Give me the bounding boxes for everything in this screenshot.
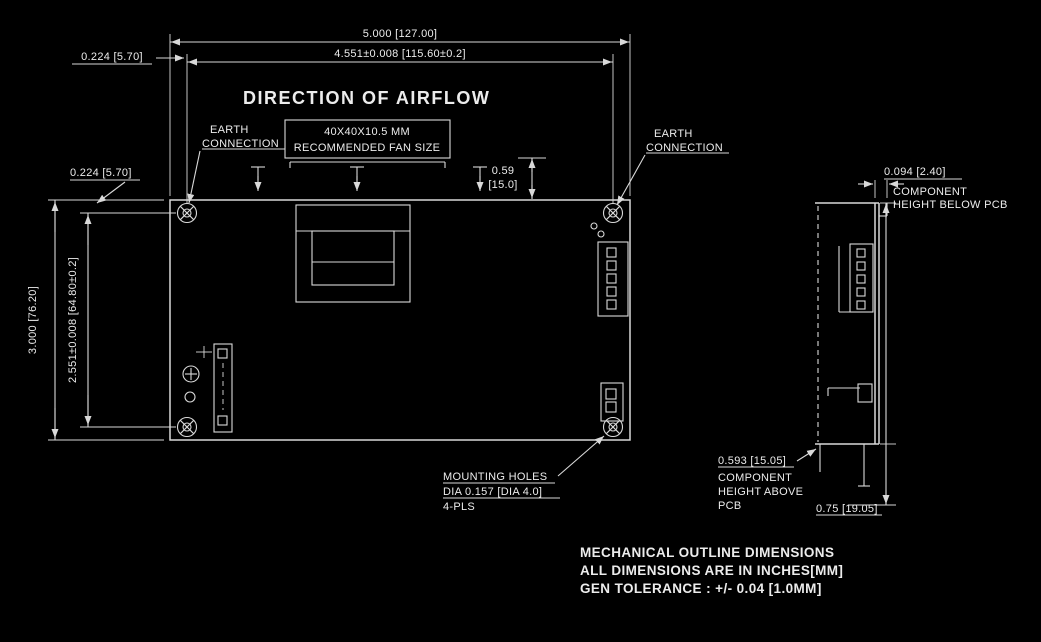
- dim-hole-inset-top-text: 0.224 [5.70]: [81, 51, 143, 63]
- mounting-hole-top-left: [178, 204, 197, 223]
- dim-hole-span-horizontal-text: 4.551±0.008 [115.60±0.2]: [334, 48, 466, 60]
- note-line3: GEN TOLERANCE : +/- 0.04 [1.0MM]: [580, 581, 822, 596]
- trimmer-potentiometer: [183, 366, 199, 402]
- earth-right-line2: CONNECTION: [646, 142, 723, 154]
- note-line2: ALL DIMENSIONS ARE IN INCHES[MM]: [580, 563, 843, 578]
- fan-box-line2: RECOMMENDED FAN SIZE: [294, 142, 441, 154]
- mounting-holes-line2: DIA 0.157 [DIA 4.0]: [443, 486, 542, 498]
- side-pins-below-pcb: [820, 444, 870, 486]
- airflow-label: DIRECTION OF AIRFLOW: [243, 88, 490, 108]
- dim-above-pcb-text: 0.593 [15.05]: [718, 455, 786, 467]
- below-pcb-line2: HEIGHT BELOW PCB: [893, 199, 1008, 211]
- fan-offset-mm: [15.0]: [488, 179, 517, 191]
- earth-connection-right-leader: [617, 153, 729, 205]
- side-view: 0.094 [2.40] COMPONENT HEIGHT BELOW PCB …: [718, 166, 1008, 515]
- center-component: [296, 205, 410, 302]
- dimension-side-height: [816, 203, 896, 515]
- earth-left-line2: CONNECTION: [202, 138, 279, 150]
- mounting-hole-bottom-left: [178, 418, 197, 437]
- dim-hole-span-vertical-text: 2.551±0.008 [64.80±0.2]: [67, 257, 79, 383]
- note-line1: MECHANICAL OUTLINE DIMENSIONS: [580, 545, 834, 560]
- top-view: DIRECTION OF AIRFLOW 5.000 [127.00] 4.55…: [27, 28, 729, 513]
- mounting-hole-bottom-right: [604, 418, 623, 437]
- fan-offset-value: 0.59: [492, 165, 515, 177]
- drawing-page: DIRECTION OF AIRFLOW 5.000 [127.00] 4.55…: [0, 0, 1041, 642]
- mounting-holes-line3: 4-PLS: [443, 501, 475, 513]
- earth-connection-left-leader: [189, 149, 285, 203]
- fan-area-bracket: [290, 162, 445, 168]
- output-connector: [591, 223, 628, 316]
- below-pcb-line1: COMPONENT: [893, 186, 967, 198]
- dim-overall-width-text: 5.000 [127.00]: [363, 28, 438, 40]
- above-pcb-line1: COMPONENT: [718, 472, 792, 484]
- above-pcb-line2: HEIGHT ABOVE: [718, 486, 803, 498]
- side-lower-component: [828, 384, 872, 402]
- aux-connector: [601, 383, 623, 421]
- earth-left-line1: EARTH: [210, 124, 249, 136]
- dim-overall-height-text: 3.000 [76.20]: [27, 286, 39, 354]
- dimension-fan-offset: [518, 158, 546, 199]
- mechanical-outline-drawing: DIRECTION OF AIRFLOW 5.000 [127.00] 4.55…: [0, 0, 1041, 642]
- dimension-overall-height: [48, 200, 164, 440]
- above-pcb-line3: PCB: [718, 500, 742, 512]
- dimension-hole-span-vertical: [80, 213, 176, 427]
- dim-pin-length-text: 0.75 [19.05]: [816, 503, 878, 515]
- input-connector: [196, 344, 232, 432]
- mounting-holes-line1: MOUNTING HOLES: [443, 471, 547, 483]
- earth-right-line1: EARTH: [654, 128, 693, 140]
- airflow-arrows: [251, 167, 487, 191]
- mounting-hole-top-right: [604, 204, 623, 223]
- side-board-outline: [815, 203, 887, 444]
- side-output-connector: [839, 244, 873, 312]
- dim-hole-inset-side-text: 0.224 [5.70]: [70, 167, 132, 179]
- board-outline: [170, 200, 630, 440]
- dim-below-pcb-text: 0.094 [2.40]: [884, 166, 946, 178]
- fan-box-line1: 40X40X10.5 MM: [324, 126, 410, 138]
- drawing-notes: MECHANICAL OUTLINE DIMENSIONS ALL DIMENS…: [580, 545, 843, 596]
